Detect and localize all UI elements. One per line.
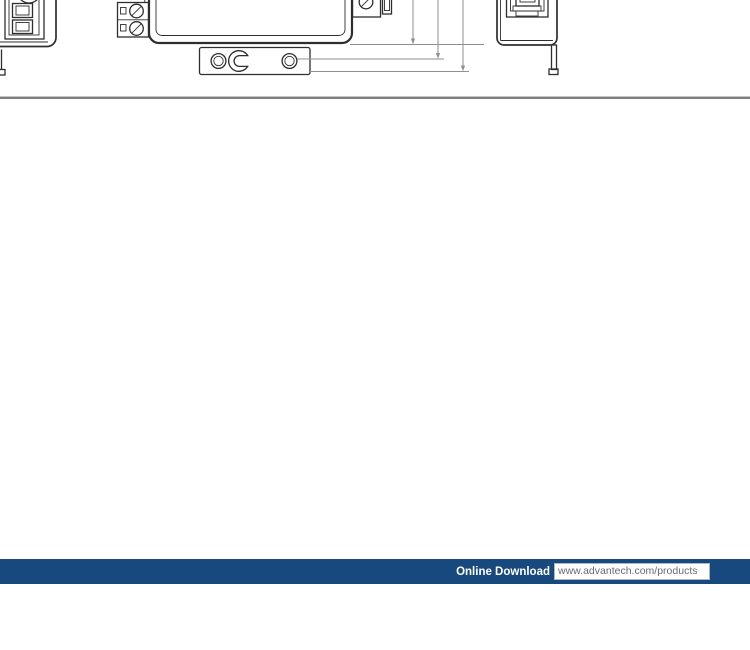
left-side-view-drawing [0, 0, 56, 75]
bottom-view-drawing [118, 0, 392, 75]
mounting-bracket [200, 48, 311, 75]
terminal-connector [5, 0, 44, 39]
top-connector [507, 0, 549, 17]
din-rail-clip [549, 45, 558, 75]
keyhole-slot [229, 51, 248, 72]
online-download-label: Online Download [456, 566, 550, 578]
datasheet-page: Online Download www.advantech.com/produc… [0, 0, 750, 650]
download-url-box[interactable]: www.advantech.com/products [554, 563, 710, 580]
dimension-drawings [0, 0, 750, 96]
download-url-text: www.advantech.com/products [558, 566, 697, 577]
din-rail-clip [0, 50, 5, 76]
screw-terminal-right [353, 0, 392, 17]
mechanical-drawing-area [0, 0, 750, 96]
right-side-view-drawing [497, 0, 558, 75]
online-download-bar: Online Download www.advantech.com/produc… [0, 559, 750, 584]
page-body-blank [0, 99, 750, 559]
screw-terminal-left [118, 0, 149, 37]
